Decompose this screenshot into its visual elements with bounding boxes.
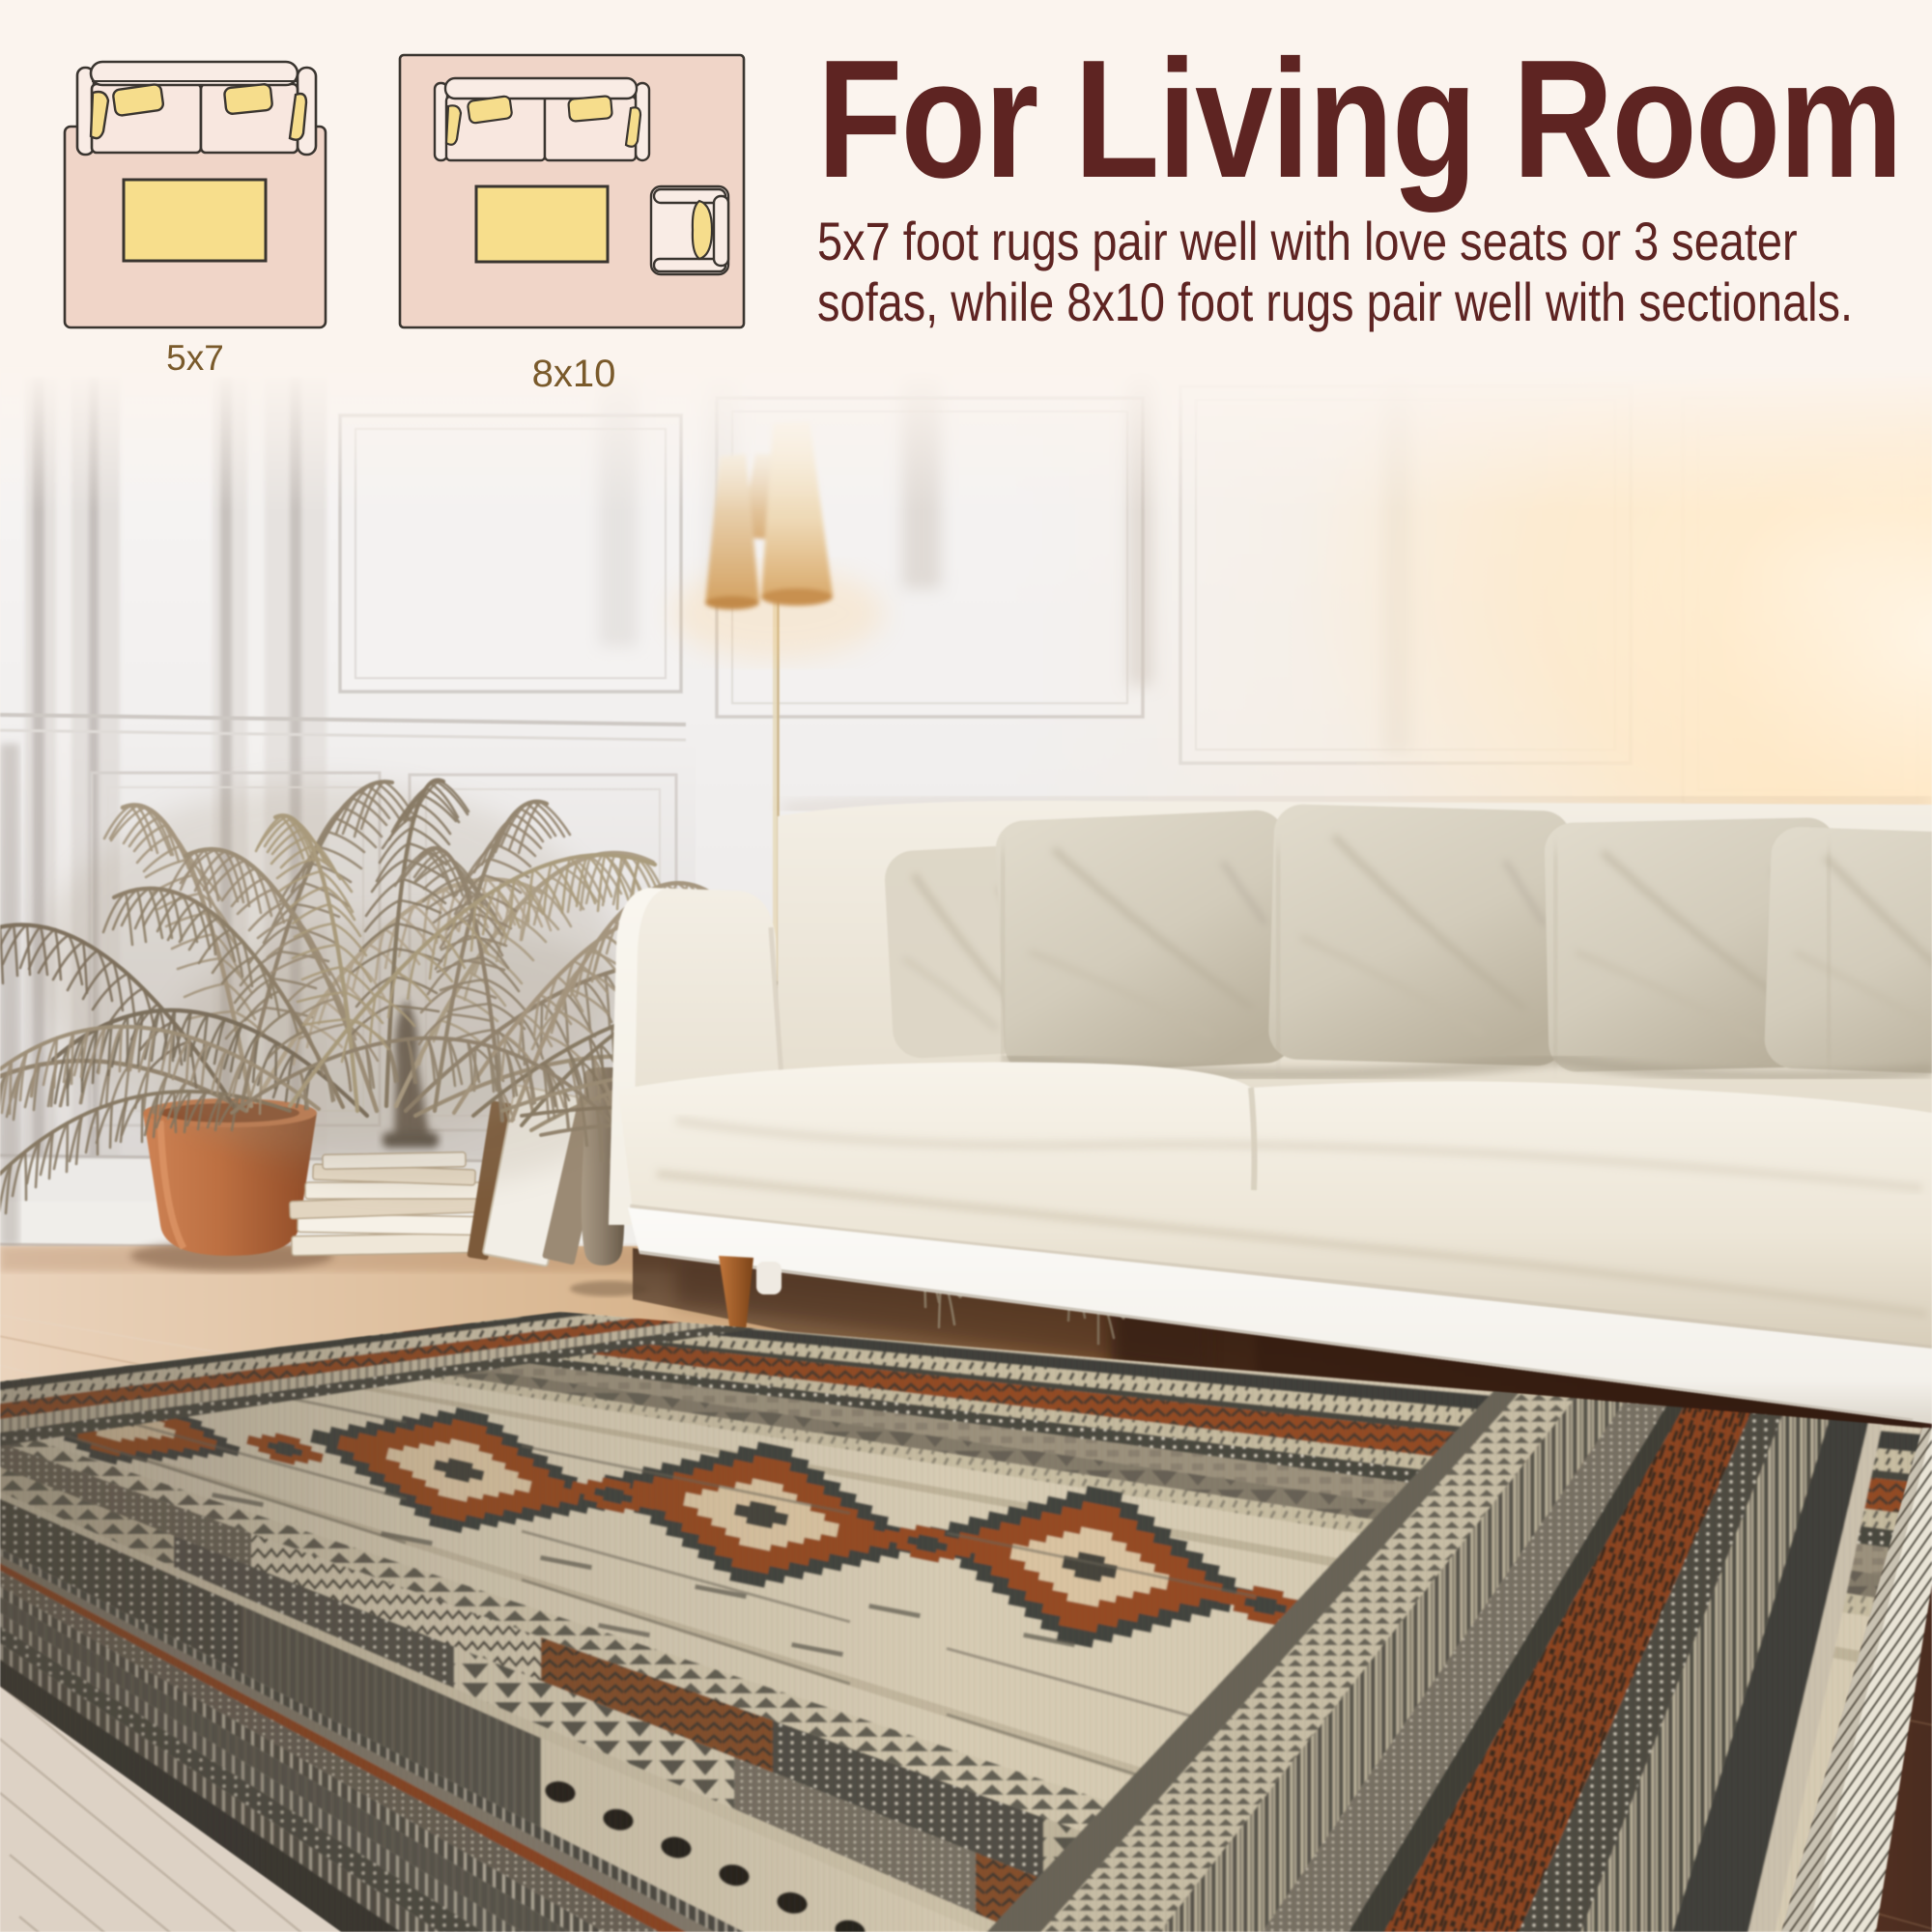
svg-text:5x7: 5x7 [166, 338, 224, 378]
svg-text:8x10: 8x10 [532, 353, 616, 395]
